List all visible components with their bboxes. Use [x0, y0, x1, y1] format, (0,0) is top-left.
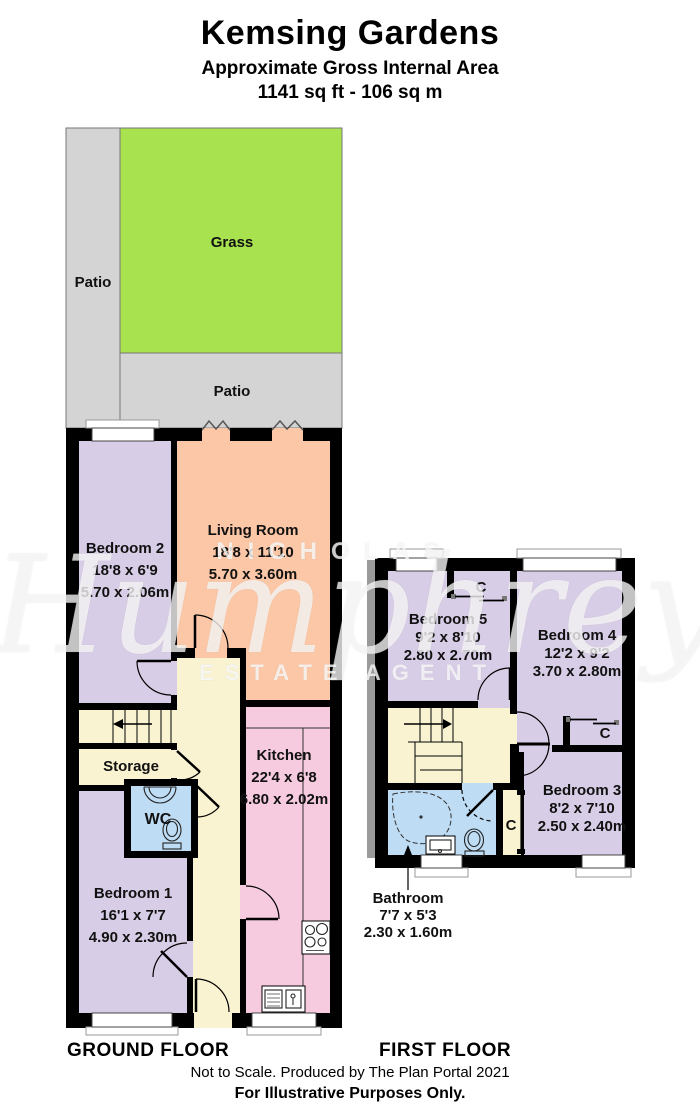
bedroom5-window-sill — [390, 549, 443, 558]
bedroom1-hall-wall — [187, 852, 193, 1013]
patio-opening-2 — [272, 428, 303, 441]
kitchen-window-sill — [247, 1027, 321, 1035]
storage-door-gap — [171, 750, 177, 778]
bathroom-dims-m: 2.30 x 1.60m — [364, 924, 452, 941]
bedroom3-door-gap — [519, 745, 552, 752]
bedroom4-name: Bedroom 4 — [538, 627, 617, 644]
kitchen-name: Kitchen — [256, 747, 311, 764]
bedroom3-window — [582, 855, 625, 868]
bedroom3-dims-m: 2.50 x 2.40m — [538, 818, 626, 835]
bedroom4-dims-ft: 12'2 x 9'2 — [544, 645, 610, 662]
bedroom1-name: Bedroom 1 — [94, 885, 172, 902]
kitchen-dims-m: 6.80 x 2.02m — [240, 791, 328, 808]
bedroom1-dims-ft: 16'1 x 7'7 — [100, 907, 166, 924]
floorplan-page: Kemsing Gardens Approximate Gross Intern… — [0, 0, 700, 1118]
bath-drain — [419, 815, 422, 818]
bedroom5-window — [396, 558, 437, 571]
bedroom4-window-sill — [517, 549, 621, 558]
bathroom-dims-ft: 7'7 x 5'3 — [379, 907, 436, 924]
bedroom3-name: Bedroom 3 — [543, 782, 621, 799]
living-dims-m: 5.70 x 3.60m — [209, 566, 297, 583]
cupboard-door-jamb-bottom — [517, 849, 525, 854]
cupboard-door-jamb-top — [517, 790, 525, 795]
kitchen-door-gap — [240, 885, 246, 919]
living-door-gap — [195, 648, 227, 658]
bedroom4-window — [523, 558, 616, 571]
bedroom2-window-sill — [86, 420, 159, 428]
floorplan-drawing: Patio Grass Patio Bedroom 2 18'8 x 6'9 5… — [0, 0, 700, 1118]
kitchen-dims-ft: 22'4 x 6'8 — [251, 769, 317, 786]
bedroom1-room-upper — [79, 791, 124, 858]
bedroom5-closet-label: C — [476, 579, 487, 596]
bedroom2-dims-m: 5.70 x 2.06m — [81, 584, 169, 601]
front-door-gap — [194, 1013, 232, 1028]
kitchen-window — [252, 1013, 316, 1027]
bedroom2-door-gap — [171, 661, 177, 695]
bedroom4-dims-m: 3.70 x 2.80m — [533, 663, 621, 680]
storage-name: Storage — [103, 758, 159, 775]
bedroom3-dims-ft: 8'2 x 7'10 — [549, 800, 615, 817]
living-name: Living Room — [208, 522, 299, 539]
bedroom5-closet-wall — [447, 571, 454, 598]
bedroom2-window — [92, 428, 154, 441]
grass-label: Grass — [211, 234, 254, 251]
bathroom-window — [421, 855, 462, 868]
gf-stairs — [79, 710, 177, 743]
bedroom1-dims-m: 4.90 x 2.30m — [89, 929, 177, 946]
bathroom-door-gap — [462, 783, 493, 790]
bedroom3-window-sill — [576, 868, 631, 877]
kitchen-hob — [302, 921, 330, 954]
bathroom-name: Bathroom — [373, 890, 444, 907]
patio-left-label: Patio — [75, 274, 112, 291]
bathroom-window-sill — [415, 868, 468, 877]
bedroom5-door-gap — [478, 701, 510, 708]
bedroom1-window — [92, 1013, 172, 1027]
bedroom2-dims-ft: 18'8 x 6'9 — [92, 562, 158, 579]
patio-bottom-label: Patio — [214, 383, 251, 400]
bedroom1-window-sill — [86, 1027, 178, 1035]
ff-landing — [388, 708, 510, 783]
bedroom4-closet-label: C — [600, 725, 611, 742]
bedroom1-door-gap — [187, 941, 193, 977]
bedroom2-name: Bedroom 2 — [86, 540, 164, 557]
living-dims-ft: 18'8 x 11'10 — [212, 544, 293, 561]
landing-cupboard-label: C — [506, 817, 517, 834]
bedroom5-dims-m: 2.80 x 2.70m — [404, 647, 492, 664]
wc-name: WC — [145, 811, 172, 828]
bedroom5-name: Bedroom 5 — [409, 611, 487, 628]
ff-wall-shadow — [367, 560, 376, 858]
bedroom5-dims-ft: 9'2 x 8'10 — [415, 629, 481, 646]
landing-door-gap — [510, 714, 517, 744]
